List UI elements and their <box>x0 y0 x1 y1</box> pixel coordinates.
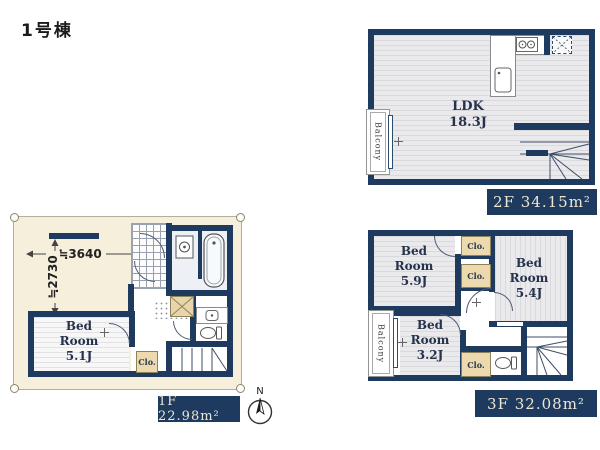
wall <box>368 29 374 113</box>
dimension-cross-marker <box>394 137 403 146</box>
washing-machine-icon <box>175 235 194 259</box>
balcony-3f-label: Balcony <box>377 324 386 363</box>
dimension-cross-marker <box>472 298 481 307</box>
balcony-2f: Balcony <box>366 109 390 175</box>
wall <box>28 371 233 377</box>
balcony-2f-label: Balcony <box>374 122 383 161</box>
stove-icon <box>516 37 538 52</box>
wall <box>368 29 595 35</box>
closet-3f-bottom: Clo. <box>461 352 491 377</box>
wall <box>227 225 233 377</box>
closet-1f: Clo. <box>136 351 158 373</box>
wall <box>128 284 134 317</box>
wall <box>166 223 172 290</box>
toilet-icon <box>494 355 518 371</box>
bathtub-icon <box>203 233 225 288</box>
stairs-3f <box>527 327 567 375</box>
compass-icon: N <box>243 384 277 426</box>
area-label-3f: 3F 32.08m² <box>475 390 597 417</box>
wall <box>567 230 573 381</box>
stairs-1f <box>172 348 227 371</box>
wall <box>368 230 374 310</box>
area-label-1f: 1F 22.98m² <box>158 396 240 422</box>
wall <box>28 311 135 317</box>
wall <box>28 311 34 377</box>
area-label-2f: 2F 34.15m² <box>487 189 597 215</box>
ldk-label: LDK 18.3J <box>436 99 500 132</box>
floor-3-plan: Balcony Clo. Clo. Clo. B <box>366 230 573 381</box>
wall <box>368 179 595 185</box>
bedroom-32-label: Bed Room 3.2J <box>402 318 458 363</box>
bedroom-54-label: Bed Room 5.4J <box>496 256 562 301</box>
lot-corner-marker <box>10 213 19 222</box>
balcony-3f-inner: Balcony <box>372 313 390 374</box>
balcony-sliding-door <box>388 115 393 169</box>
lot-corner-marker <box>10 384 19 393</box>
kitchen-sink-icon <box>494 67 512 93</box>
wall <box>589 29 595 185</box>
compass-north-label: N <box>256 386 263 397</box>
wall <box>544 35 550 55</box>
vanity-sink <box>196 307 228 324</box>
floor-2-plan: Balcony <box>366 29 597 185</box>
washer-pan-icon <box>170 296 194 317</box>
bedroom-1f-label: Bed Room 5.1J <box>44 319 114 364</box>
wall <box>166 341 227 347</box>
closet-3f-top: Clo. <box>461 236 491 256</box>
wall <box>394 310 461 316</box>
lot-corner-marker <box>236 213 245 222</box>
floor-1-plan: ≒3640 ≒2730 <box>13 216 242 390</box>
toilet-icon <box>199 325 223 341</box>
floorplan-page: 1号棟 ≒3640 ≒2730 <box>0 0 600 450</box>
closet-3f-mid: Clo. <box>461 264 491 288</box>
balcony-3f: Balcony <box>368 310 394 377</box>
stairs-2f <box>520 130 589 179</box>
bedroom-59-label: Bed Room 5.9J <box>380 244 448 289</box>
refrigerator-space-icon <box>552 36 572 54</box>
dimension-height-label: ≒2730 <box>46 251 60 303</box>
page-title: 1号棟 <box>21 16 73 41</box>
wall <box>198 231 202 279</box>
wall <box>514 123 589 130</box>
balcony-2f-inner: Balcony <box>370 112 386 172</box>
window-slit <box>497 322 523 326</box>
